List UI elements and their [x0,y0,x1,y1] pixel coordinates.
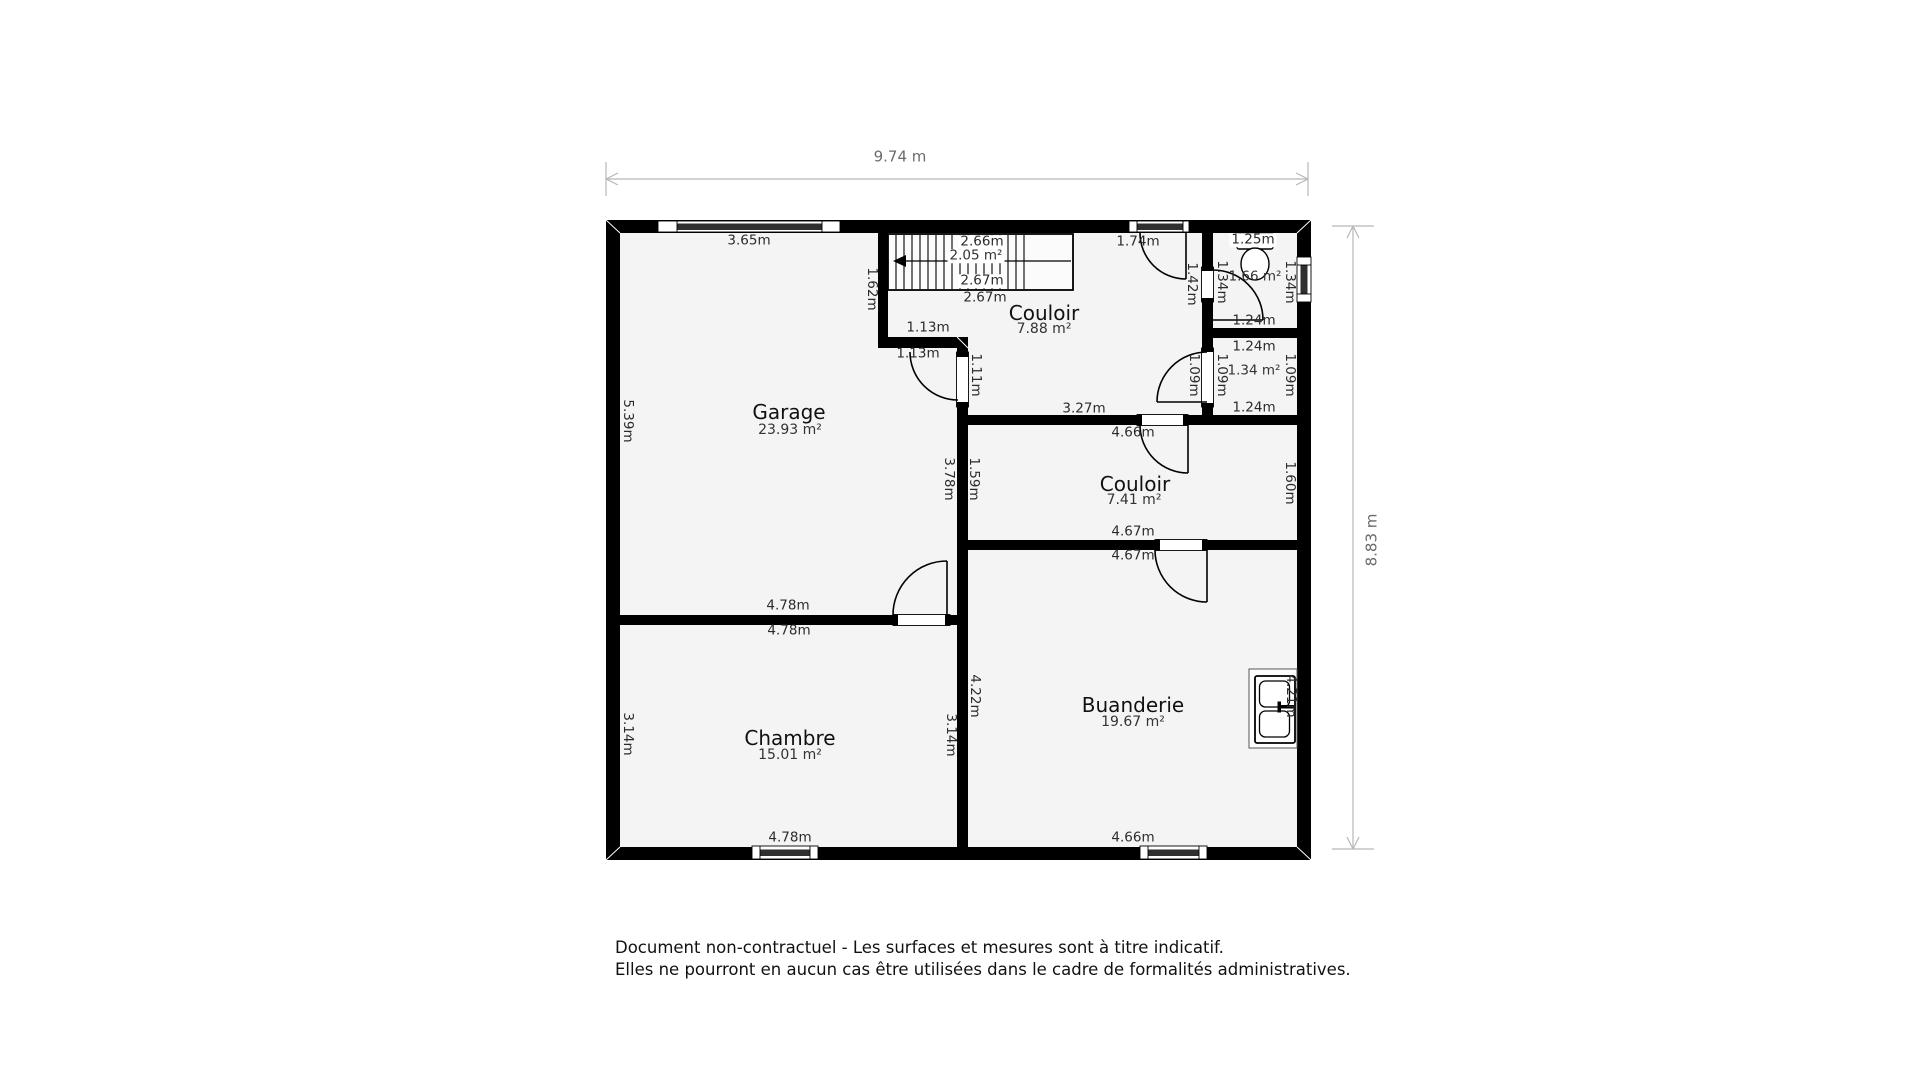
dim-stairs-width-bottom: 2.67m [958,274,1005,288]
dim-couloir-bottom: 3.27m [1062,402,1105,416]
room-area-chambre: 15.01 m² [758,748,822,762]
window-buanderie-bottom [1140,846,1207,859]
window-garage-top [658,221,840,232]
dim-cab-right: 1.09m [1282,353,1296,396]
room-area-couloir-1: 7.88 m² [1017,322,1072,336]
dim-buanderie-top: 4.67m [1111,549,1154,563]
room-area-wc: 1.66 m² [1229,270,1282,284]
disclaimer-line-1: Document non-contractuel - Les surfaces … [615,937,1351,959]
dim-stairs-below: 2.67m [963,291,1006,305]
floorplan-drawing [0,0,1920,1080]
dim-wc-right: 1.34m [1282,260,1296,303]
room-name-chambre: Chambre [744,728,835,748]
dim-stairwell-wall: 1.62m [864,267,878,310]
dim-buanderie-right: 4.21m [1283,674,1297,717]
dim-buanderie-left: 4.22m [967,674,981,717]
dim-wc-left: 1.34m [1214,260,1228,303]
window-wc-right [1297,257,1311,302]
overall-height-dimension: 8.83 m [1365,514,1380,567]
wall-right [1297,220,1311,860]
dim-couloir2-bottom: 4.67m [1111,525,1154,539]
dim-wc-wall-couloir: 1.42m [1184,262,1198,305]
dim-chambre-left: 3.14m [620,712,634,755]
overall-width-dimension: 9.74 m [874,150,927,165]
dim-garage-left: 5.39m [620,399,634,442]
dim-couloir2-top: 4.66m [1111,426,1154,440]
dim-entry-window: 1.74m [1116,235,1159,249]
dim-garage-bottom: 4.78m [766,599,809,613]
sill-chambre-door [893,615,950,626]
sill-garage-door [957,352,969,407]
dim-stairs-width-top: 2.66m [958,235,1005,249]
dim-cab-bottom: 1.24m [1232,401,1275,415]
dim-couloir2-left: 1.59m [966,457,980,500]
floorplan-page: 9.74 m 8.83 m Garage 23.93 m² Couloir 7.… [0,0,1920,1080]
room-area-buanderie: 19.67 m² [1101,715,1165,729]
window-entry-top [1129,221,1189,232]
dim-couloir2-right: 1.60m [1282,461,1296,504]
dim-buanderie-bottom: 4.66m [1111,831,1154,845]
sill-wc-door [1202,267,1214,302]
room-name-garage: Garage [752,402,825,422]
dim-cab-top: 1.24m [1232,340,1275,354]
sill-cab-door [1202,348,1214,407]
room-name-couloir-1: Couloir [1009,303,1079,323]
dim-garage-right: 3.78m [941,457,955,500]
dim-garage-door: 1.11m [968,353,982,396]
disclaimer-line-2: Elles ne pourront en aucun cas être util… [615,959,1351,981]
dim-wc-bottom: 1.24m [1232,314,1275,328]
dim-chambre-bottom: 4.78m [768,831,811,845]
room-area-cabinet: 1.34 m² [1228,364,1281,378]
dim-cab-left: 1.09m [1214,353,1228,396]
wall-wc-bottom [1202,328,1298,338]
dim-cab-wall-couloir: 1.09m [1186,353,1200,396]
sill-buanderie-door [1155,540,1207,551]
dim-chambre-top: 4.78m [767,624,810,638]
dim-notch-bottom: 1.13m [896,347,939,361]
dim-notch-top: 1.13m [906,321,949,335]
window-chambre-bottom [752,846,818,859]
room-area-garage: 23.93 m² [758,423,822,437]
room-name-buanderie: Buanderie [1082,695,1184,715]
room-area-stairs: 2.05 m² [948,249,1005,263]
dim-wc-top: 1.25m [1229,233,1276,247]
dim-chambre-right: 3.14m [943,713,957,756]
dimension-line-top [606,162,1308,196]
disclaimer: Document non-contractuel - Les surfaces … [615,937,1351,981]
wall-left [606,220,620,860]
dim-garage-window: 3.65m [727,234,770,248]
room-name-couloir-2: Couloir [1100,474,1170,494]
room-area-couloir-2: 7.41 m² [1107,493,1162,507]
